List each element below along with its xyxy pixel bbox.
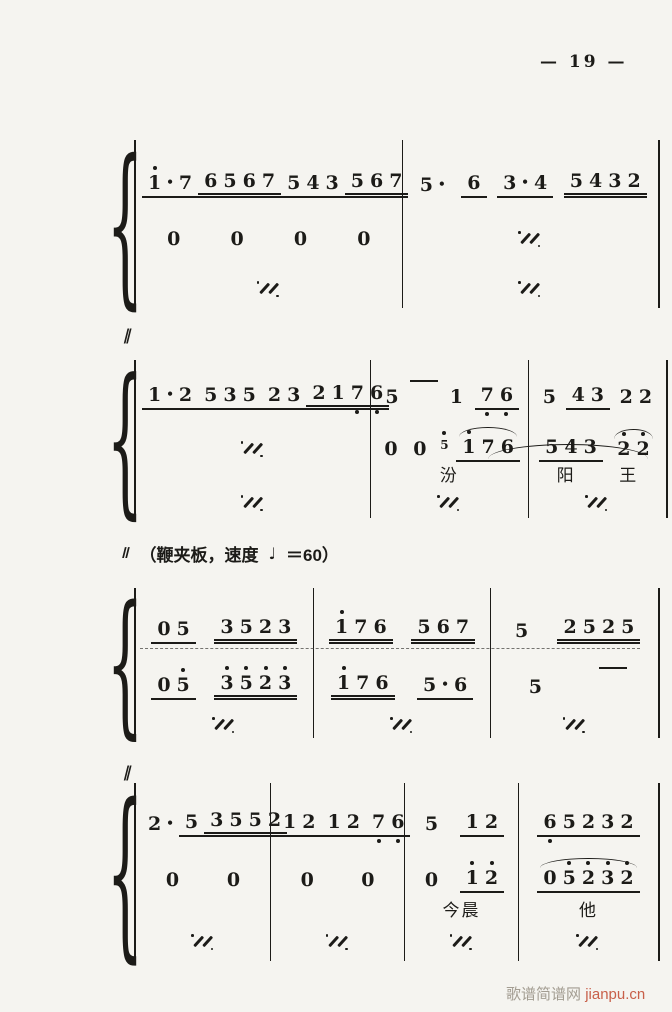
note: 5 [414,618,433,637]
system-2: {1•25352321765176005176汾5432254322阳王 [116,360,660,518]
octave-down-dot [355,410,359,414]
note-group: 2• [142,814,179,837]
note-group: 3•4 [497,173,553,198]
note: 4 [531,174,550,193]
system-1: {1•7656754356700005•63•45432 [116,140,660,308]
note-group: 1•2 [142,385,198,410]
brace-glyph: { [107,357,144,521]
note: 0 [358,871,377,890]
note-group: 0 [355,870,380,893]
simile-stroke [518,281,521,284]
notation-row: 5•63•45432 [403,140,658,198]
note-group: 567 [411,617,475,644]
simile-stroke [529,233,540,244]
note-group: 5 [379,387,404,410]
note: 6 [372,674,391,693]
notation-row [136,488,370,516]
note-group: 176 [331,673,395,700]
note: 5 [439,439,449,451]
note-group: 0 [288,229,313,252]
note: 2 [482,813,501,832]
measure-repeat-sign [562,716,588,734]
simile-stroke [232,731,235,734]
slur-arc [540,858,636,868]
brace-glyph: { [107,585,144,740]
simile-stroke [457,509,460,512]
note: 6 [367,172,386,191]
note-group: 5 [419,814,444,837]
note-group: 5 [509,621,534,644]
note: 2 [617,388,636,407]
brace-glyph: { [107,137,144,311]
note: 5 [560,813,579,832]
measure-repeat-sign [517,230,543,248]
octave-up-dot [225,666,229,670]
simile-stroke [585,495,588,498]
note-group: 5 [179,812,204,837]
note-group: 12 [277,812,321,837]
note: 2 [256,674,275,693]
notation-row: 52525 [491,588,658,644]
tempo-text: （鞭夹板，速度 [139,541,258,566]
note: 4 [586,172,605,191]
note: 4 [569,386,588,405]
note: 6 [388,813,407,832]
measure-repeat-sign [575,933,601,951]
note: 0 [422,871,441,890]
measures: 0535230535231765671765•6525255 [134,588,660,738]
note: 0 [291,230,310,249]
notation-row: 512 [405,783,518,837]
measure-repeat-sign [325,933,351,951]
notation-row: 65232 [519,783,658,837]
lyric-text: 王 [619,461,638,488]
slur-arc [459,427,517,437]
simile-stroke [241,441,244,444]
note: 3 [500,174,519,193]
lyric-text: 阳 [557,461,576,488]
system-brace: { [116,360,134,518]
note: 0 [224,871,243,890]
note: 1 [447,388,466,407]
note-group: 176 [329,617,393,644]
note-group: 535 [198,385,262,410]
augmentation-dot: • [164,388,176,404]
note-group: 65232 [537,812,639,837]
note: 3 [598,813,617,832]
note: 1 [459,438,478,457]
octave-down-dot [548,839,552,843]
notation-row: 121276 [271,783,404,837]
note: 2 [309,384,328,403]
note-group: 1 [444,387,469,410]
note: 5 [182,813,201,832]
simile-stroke [605,509,608,512]
lyric-text: 汾 [440,461,459,488]
note: 6 [497,386,516,405]
note-group: 3523 [214,673,297,700]
notation-row: 012 [405,837,518,893]
measure-repeat-sign [211,716,237,734]
note: 1 [334,674,353,693]
measures: 2•535520012127600512012今晨6523205232他 [134,783,660,961]
note-group: 0 [295,870,320,893]
note: 1 [463,813,482,832]
simile-stroke [276,295,279,298]
notation-row: 176567 [314,588,491,644]
simile-stroke [596,948,599,951]
note: 5 [567,172,586,191]
simile-stroke [260,509,263,512]
octave-down-dot [377,839,381,843]
note: 6 [540,813,559,832]
note: 3 [588,386,607,405]
simile-stroke [260,455,263,458]
note: 5 [348,172,367,191]
note-group: 0 [161,229,186,252]
octave-down-dot [504,412,508,416]
note: 1 [332,618,351,637]
note: 5 [526,678,545,697]
note: 7 [478,386,497,405]
note: 5 [174,620,193,639]
notation-row: 1•2535232176 [136,360,370,410]
note-group: 543 [281,173,345,198]
duration-dash [410,380,438,383]
simile-stroke [211,948,214,951]
note: 7 [176,174,195,193]
quarter-note-icon: ♩ [268,544,276,563]
octave-up-dot [244,666,248,670]
octave-down-dot [485,412,489,416]
note-group: 3523 [214,617,297,644]
simile-stroke [576,934,579,937]
octave-up-dot [490,861,494,865]
dashed-tie-line [140,648,640,649]
note-group: 5 [537,387,562,410]
octave-down-dot [396,839,400,843]
measure: 512012今晨 [405,783,519,961]
measure: 5432254322阳王 [529,360,666,518]
octave-up-dot [340,610,344,614]
note: 3 [275,618,294,637]
notation-row [491,700,658,738]
notation-row [314,700,491,738]
note: 7 [259,172,278,191]
note: 5 [226,811,245,830]
note: 5 [382,388,401,407]
octave-up-dot [181,668,185,672]
note-group: 12 [460,812,504,837]
note: 1 [145,386,164,405]
note-group: 0 [407,439,432,462]
measure-repeat-sign [190,933,216,951]
note-group: 76 [475,385,519,410]
simile-stroke [538,245,541,248]
notation-row [371,488,528,516]
note: 3 [284,386,303,405]
note-group: 1•7 [142,173,198,198]
augmentation-dot: • [164,176,176,192]
note: 5 [420,676,439,695]
note: 0 [163,871,182,890]
note: 2 [560,618,579,637]
notation-row: 5176 [371,360,528,410]
note: 7 [369,813,388,832]
note: 7 [453,618,472,637]
note-group: 0 [351,229,376,252]
note: 1 [280,813,299,832]
note: 3 [220,386,239,405]
note-group: 5•6 [417,675,473,700]
system-brace: { [116,140,134,308]
notation-row [529,488,666,516]
measure-repeat-sign [389,716,415,734]
simile-stroke [538,295,541,298]
note: 0 [410,440,429,459]
notation-row: 汾 [371,462,528,488]
note: 7 [351,618,370,637]
octave-up-dot [442,431,446,435]
lyric-text: 今晨 [443,896,481,923]
measure-repeat-sign [517,280,543,298]
measures: 1•7656754356700005•63•45432 [134,140,660,308]
measure: 12127600 [271,783,405,961]
note: 4 [303,174,322,193]
simile-stroke [529,283,540,294]
note-group: 23 [262,385,306,410]
lyric-text: 他 [579,896,598,923]
measure: 5•63•45432 [403,140,658,308]
note: 3 [217,618,236,637]
note: 0 [298,871,317,890]
measure-repeat-sign [436,494,462,512]
note-group: 76 [366,812,410,837]
simile-stroke [563,717,566,720]
notation-row [271,893,404,923]
notation-row [136,410,370,462]
notation-row: 5 [491,644,658,700]
note-group: 6 [461,173,486,198]
note-group: 05232 [537,868,639,893]
note-group: 567 [345,171,409,198]
notation-row [405,923,518,955]
system-3: {0535230535231765671765•6525255 [116,588,660,738]
notation-row [271,923,404,955]
note: 2 [256,618,275,637]
octave-up-dot [153,166,157,170]
note-group: 43 [566,385,610,410]
measure-repeat-sign [256,280,282,298]
measure-repeat-sign [449,933,475,951]
notation-row: 053523 [136,644,313,700]
notation-row: 00 [271,837,404,893]
note: 6 [464,174,483,193]
note: 2 [599,618,618,637]
notation-row: 54322 [529,360,666,410]
slur-arc [614,429,652,439]
watermark-link[interactable]: jianpu.cn [585,986,645,1003]
notation-row [136,700,313,738]
octave-up-dot [342,666,346,670]
octave-up-dot [264,666,268,670]
octave-up-dot [283,666,287,670]
simile-stroke [450,934,453,937]
note: 5 [237,618,256,637]
simile-stroke [257,281,260,284]
note: 6 [434,618,453,637]
notation-row [403,252,658,302]
note: 6 [370,618,389,637]
octave-up-dot [470,861,474,865]
double-barline-icon: ‖ [120,545,132,562]
notation-row: 0000 [136,198,402,252]
measure-repeat-sign [240,494,266,512]
tempo-instruction: ‖ （鞭夹板，速度 ♩ ＝60） [122,541,339,566]
note-group: 0 [419,870,444,893]
measure: 6523205232他 [519,783,658,961]
notation-row: 2•53552 [136,783,270,837]
note: 2 [344,813,363,832]
system-brace: { [116,588,134,738]
measure: 2•5355200 [136,783,271,961]
note: 0 [227,230,246,249]
system-brace: { [116,783,134,961]
note: 0 [154,676,173,695]
notation-row [136,893,270,923]
note: 6 [451,676,470,695]
simile-stroke [345,948,348,951]
note: 5 [220,172,239,191]
grace-note-group: 5 [436,438,452,454]
notation-row [403,198,658,252]
note-group: 2176 [306,383,389,410]
note: 7 [353,674,372,693]
notation-row: 他 [519,893,658,923]
duration-dash [599,667,627,670]
note: 3 [323,174,342,193]
simile-stroke [469,948,472,951]
notation-row: 00 [136,837,270,893]
augmentation-dot: • [164,817,176,833]
note: 2 [482,869,501,888]
double-barline-icon: ‖ [122,326,134,344]
note: 6 [240,172,259,191]
note: 5 [201,386,220,405]
note: 7 [348,384,367,403]
simile-stroke [241,495,244,498]
note: 2 [617,813,636,832]
note: 5 [417,176,436,195]
note: 3 [217,674,236,693]
note: 1 [325,813,344,832]
augmentation-dot: • [439,678,451,694]
note: 3 [275,674,294,693]
tempo-value: ＝60） [286,541,339,566]
note: 5 [580,618,599,637]
notation-row: 阳王 [529,462,666,488]
note: 2 [579,869,598,888]
note-group: 22 [614,387,658,410]
measure-repeat-sign [584,494,610,512]
measure: 1765671765•6 [314,588,492,738]
simile-stroke [588,936,599,947]
notation-row: 今晨 [405,893,518,923]
note: 0 [381,440,400,459]
simile-stroke [212,717,215,720]
note-group: 12 [460,868,504,893]
note-group: 5• [414,175,451,198]
note-group: 3552 [204,810,287,837]
watermark-site-name: 歌谱简谱网 [506,986,581,1003]
note-group: 5 [523,677,548,700]
note: 5 [422,815,441,834]
note: 5 [240,386,259,405]
measures: 1•25352321765176005176汾5432254322阳王 [134,360,668,518]
note: 0 [540,869,559,888]
simile-stroke [597,497,608,508]
note: 0 [354,230,373,249]
notation-row: 05232 [519,837,658,893]
note: 2 [145,815,164,834]
note-group: 0 [224,229,249,252]
note: 1 [329,384,348,403]
note: 5 [618,618,637,637]
note: 5 [237,674,256,693]
octave-down-dot [375,410,379,414]
simile-stroke [448,497,459,508]
note-group: 0 [221,870,246,893]
note: 5 [512,622,531,641]
note: 2 [176,386,195,405]
notation-row [136,923,270,955]
measure: 5176005176汾 [371,360,529,518]
augmentation-dot: • [519,176,531,192]
measure: 525255 [491,588,658,738]
measure: 1•2535232176 [136,360,371,518]
simile-stroke [326,934,329,937]
note: 5 [540,388,559,407]
simile-stroke [582,731,585,734]
note: 1 [463,869,482,888]
note: 0 [154,620,173,639]
note: 2 [265,386,284,405]
note: 5 [246,811,265,830]
note: 5 [174,676,193,695]
note: 2 [624,172,643,191]
note: 5 [284,174,303,193]
measure-repeat-sign [240,440,266,458]
note-group: 0 [378,439,403,462]
simile-stroke [437,495,440,498]
simile-stroke [390,717,393,720]
notation-row [136,252,402,302]
note-group: 12 [322,812,366,837]
note: 3 [605,172,624,191]
note: 7 [386,172,405,191]
note: 1 [145,174,164,193]
measure: 053523053523 [136,588,314,738]
note: 2 [636,388,655,407]
note-group: 2525 [557,617,640,644]
augmentation-dot: • [436,178,448,194]
notation-row: 1•76567543567 [136,140,402,198]
note: 5 [560,869,579,888]
note-group: 0 [160,870,185,893]
notation-row [136,462,370,488]
simile-stroke [410,731,413,734]
note: 3 [598,869,617,888]
